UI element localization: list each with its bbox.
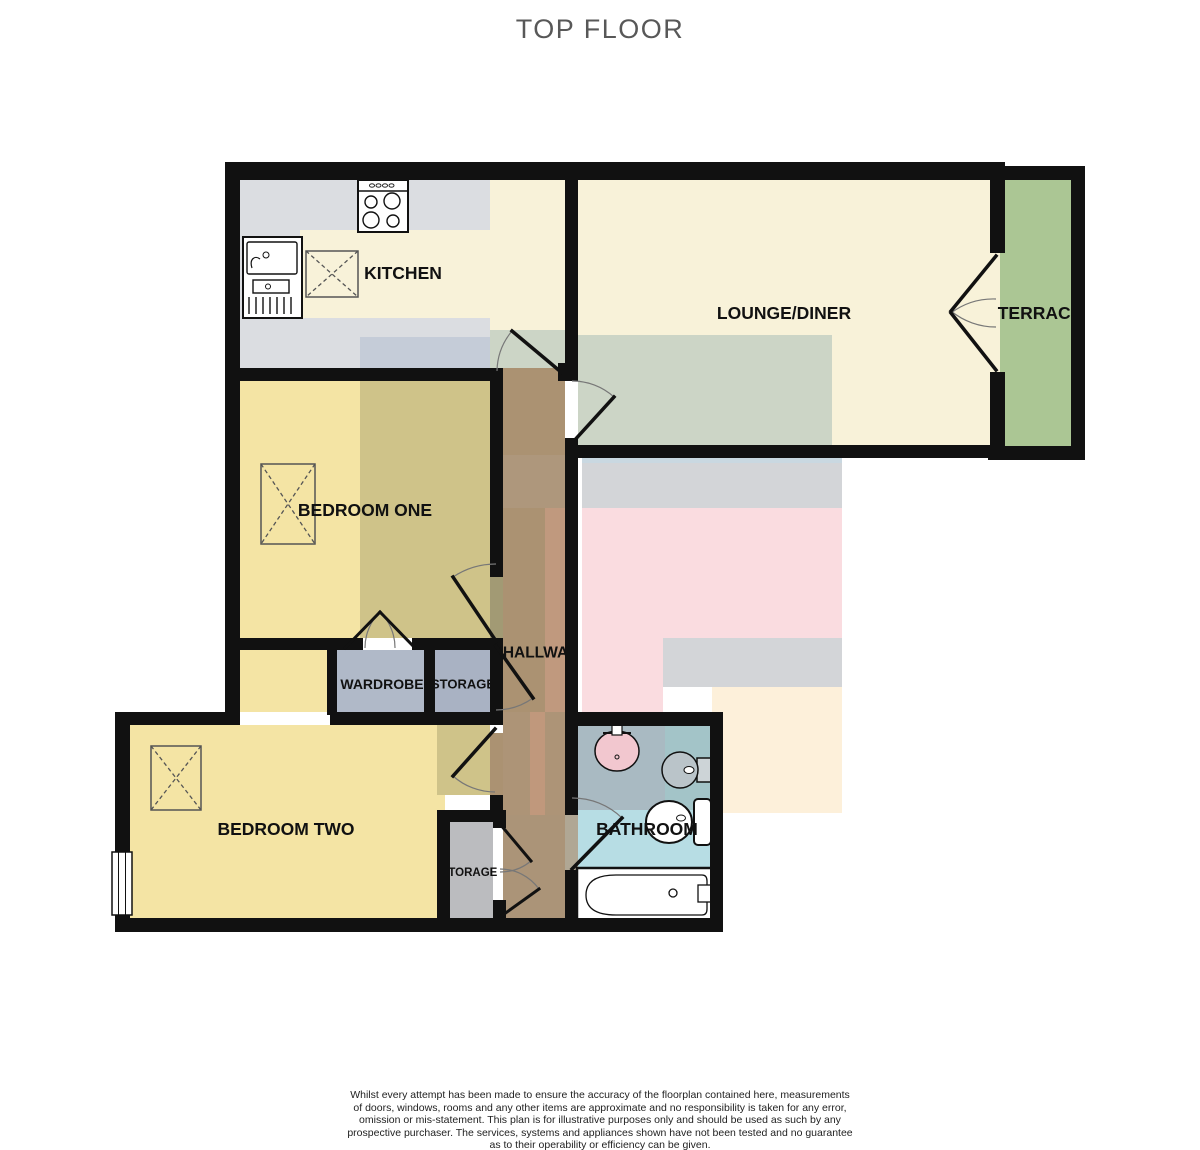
floor-plan-page: TOP FLOOR (0, 0, 1200, 1150)
lounge-diner-label: LOUNGE/DINER (717, 303, 852, 323)
disclaimer-line: as to their operability or efficiency ca… (0, 1139, 1200, 1150)
toilet-top-icon (662, 752, 711, 788)
disclaimer-line: Whilst every attempt has been made to en… (0, 1089, 1200, 1102)
disclaimer: Whilst every attempt has been made to en… (0, 1089, 1200, 1150)
ghost-gray-upper (582, 463, 842, 508)
window-icon (112, 852, 132, 915)
disclaimer-line: prospective purchaser. The services, sys… (0, 1127, 1200, 1140)
floor-plan-svg: KITCHEN LOUNGE/DINER TERRACE BEDROOM ONE… (0, 0, 1200, 1150)
bedroom-two-door-gap (490, 733, 503, 795)
ghost-pink-main (582, 508, 842, 638)
ghost-pink-lower (582, 638, 663, 712)
bedroom-one-door-gap (490, 577, 503, 641)
bedroom-two-upper-floor (237, 650, 327, 712)
stove-icon (358, 180, 408, 232)
disclaimer-line: of doors, windows, rooms and any other i… (0, 1102, 1200, 1115)
kitchen-counter-blue (360, 337, 490, 368)
bathtub-icon (577, 868, 713, 922)
ghost-strip-blue (582, 458, 842, 463)
bedroom-one-label: BEDROOM ONE (298, 500, 432, 520)
bedroom-two-notch (437, 725, 490, 795)
ghost-cream (712, 687, 842, 813)
disclaimer-line: omission or mis-statement. This plan is … (0, 1114, 1200, 1127)
bedroom-two-label: BEDROOM TWO (217, 819, 354, 839)
lounge-floor-overlay (578, 335, 832, 445)
wardrobe-label: WARDROBE (340, 676, 423, 692)
storage-upper-label: STORAGE (431, 677, 495, 692)
kitchen-label: KITCHEN (364, 263, 442, 283)
ghost-gray-lower (663, 638, 842, 687)
bathroom-door-gap (565, 815, 578, 870)
sink-icon (243, 237, 302, 318)
terrace-label: TERRACE (998, 303, 1083, 323)
